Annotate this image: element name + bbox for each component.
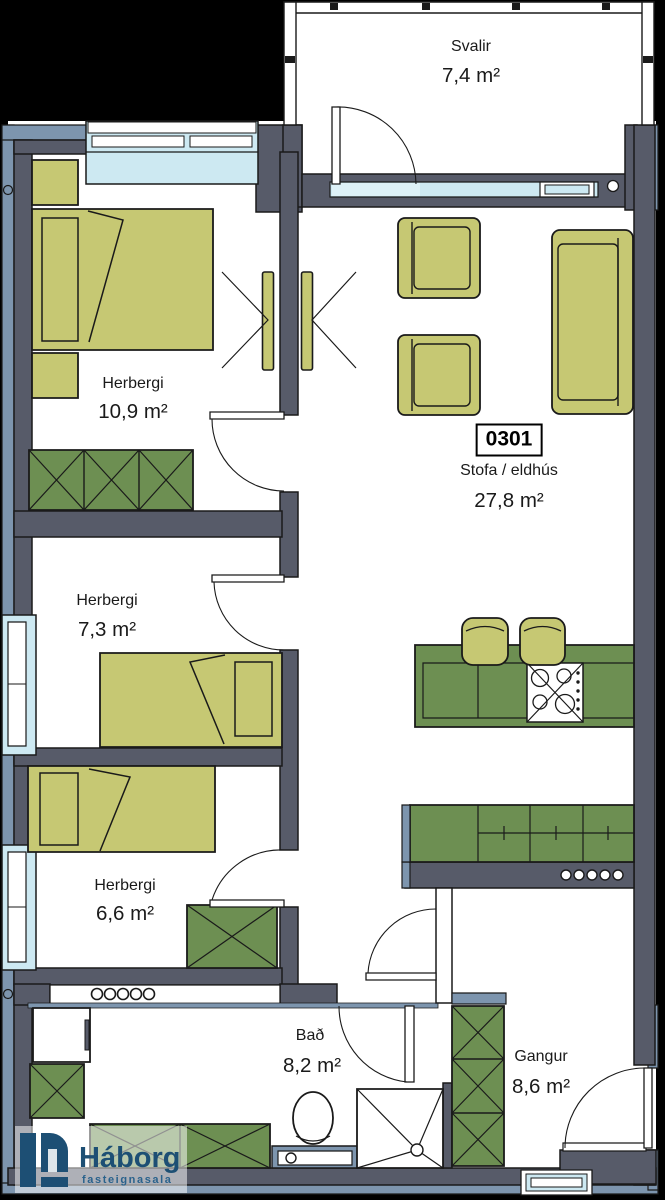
haborg-logo-icon — [20, 1133, 78, 1189]
kitchen-wall-cap — [402, 862, 410, 888]
room-label-herbergi1-name: Herbergi — [102, 376, 163, 392]
room-label-herbergi3-area: 6,6 m² — [96, 904, 154, 925]
shower — [357, 1089, 443, 1168]
wardrobe — [187, 905, 277, 968]
hall-wardrobe-shelf — [452, 993, 506, 1004]
bar-stool — [520, 618, 565, 665]
washer — [33, 1008, 90, 1062]
room-label-gangur-name: Gangur — [514, 1049, 567, 1065]
wall-bath-left-fill — [14, 984, 50, 1005]
floor-plan-canvas: Svalir 7,4 m² Herbergi 10,9 m² 0301 Stof… — [0, 0, 665, 1200]
room-label-svalir-area: 7,4 m² — [442, 66, 500, 87]
window-bedroom2-left — [2, 615, 36, 755]
logo-bar — [20, 1133, 36, 1187]
wall-central-1 — [280, 152, 298, 415]
room-label-herbergi1-area: 10,9 m² — [98, 402, 168, 423]
armchair — [398, 335, 480, 415]
wall-divider-bed1-bed2 — [14, 511, 282, 537]
room-label-svalir-name: Svalir — [451, 39, 491, 55]
sofa — [552, 230, 633, 414]
logo-arch-notch — [48, 1149, 57, 1172]
railing-left — [284, 2, 296, 125]
window-bedroom1-top — [86, 121, 258, 184]
cooktop — [527, 663, 583, 722]
agency-name: Háborg — [79, 1142, 181, 1175]
window-hall-bottom — [521, 1170, 592, 1195]
single-bed — [28, 766, 215, 852]
unit-number-badge: 0301 — [476, 424, 543, 457]
downspout-left-bottom — [4, 990, 13, 999]
agency-tagline: fasteignasala — [82, 1174, 173, 1186]
radiator-circles — [92, 989, 155, 1000]
radiator-bath-wall — [50, 985, 280, 1004]
double-bed — [32, 209, 213, 350]
bar-stool — [462, 618, 508, 665]
wall-bath-hall — [443, 1083, 452, 1168]
kitchen-counter-lower — [402, 805, 634, 862]
room-label-stofa-name: Stofa / eldhús — [460, 463, 558, 479]
vent-circles — [561, 870, 623, 880]
room-label-bad-area: 8,2 m² — [283, 1056, 341, 1077]
armchair — [398, 218, 480, 298]
bedroom2-furniture — [100, 653, 282, 747]
agency-logo: Háborg fasteignasala — [15, 1126, 187, 1193]
wall-bath-right-fill — [280, 984, 337, 1004]
hall-wardrobe — [452, 1006, 504, 1166]
railing-top — [284, 2, 654, 13]
wall-right-upper — [634, 125, 655, 1065]
window-bedroom3-left — [2, 845, 36, 970]
logo-bar — [41, 1177, 68, 1187]
wall-divider-bed2-bed3 — [14, 748, 282, 766]
downspout-left-top — [4, 186, 13, 195]
window-glass-band — [330, 181, 619, 198]
cabinet — [30, 1064, 84, 1118]
single-bed — [100, 653, 282, 747]
room-label-herbergi2-area: 7,3 m² — [78, 620, 136, 641]
wardrobe — [29, 450, 193, 510]
room-label-herbergi2-name: Herbergi — [76, 593, 137, 609]
nightstand — [32, 353, 78, 398]
railing-right — [642, 2, 654, 125]
nightstand — [32, 160, 78, 205]
room-label-gangur-area: 8,6 m² — [512, 1077, 570, 1098]
wall-divider-bed3-bath — [14, 968, 282, 985]
lining-top-left — [2, 125, 92, 140]
shower-drain — [411, 1144, 423, 1156]
room-label-herbergi3-name: Herbergi — [94, 878, 155, 894]
wall-top-left — [14, 140, 92, 154]
room-label-bad-name: Bað — [296, 1028, 324, 1044]
corridor-partition — [436, 888, 452, 1003]
room-label-stofa-area: 27,8 m² — [474, 491, 544, 512]
